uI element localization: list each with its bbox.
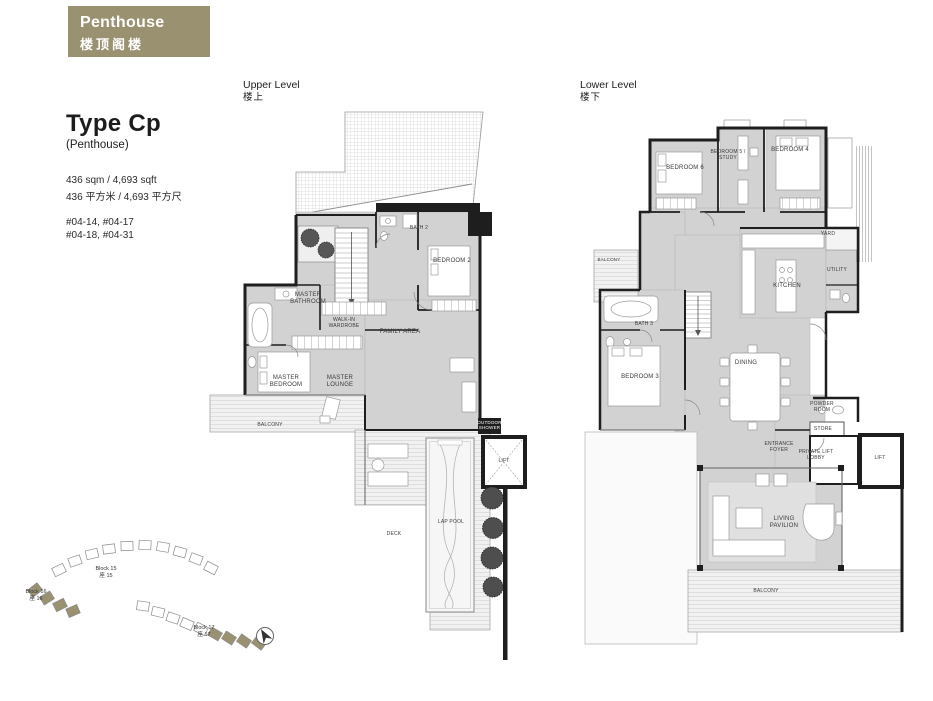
room-label-master-lounge: MASTER LOUNGE bbox=[320, 375, 360, 389]
room-label-deck: DECK bbox=[378, 532, 410, 538]
room-label-living-pavilion: LIVING PAVILION bbox=[762, 516, 806, 530]
dining-table-icon bbox=[720, 345, 790, 430]
room-label-yard: YARD bbox=[816, 232, 840, 238]
room-label-entrance-foyer: ENTRANCE FOYER bbox=[762, 442, 796, 454]
room-label-lower-lift: LIFT bbox=[862, 456, 898, 462]
lower-terrace-area bbox=[585, 432, 697, 644]
lower-level-label-en: Lower Level bbox=[580, 79, 637, 92]
room-label-upper-lift: LIFT bbox=[488, 459, 520, 465]
keyplan-block-16-label: Block 16 座 16 bbox=[16, 589, 56, 603]
room-label-family-area: FAMILY AREA bbox=[377, 329, 423, 336]
room-label-bedroom-6: BEDROOM 6 bbox=[663, 165, 707, 172]
room-label-master-bedroom: MASTER BEDROOM bbox=[264, 375, 308, 389]
room-label-dining: DINING bbox=[730, 360, 762, 367]
room-label-bath-3: BATH 3 bbox=[630, 322, 658, 328]
block-15-zh: 座 15 bbox=[86, 573, 126, 580]
stairs-icon bbox=[685, 292, 711, 338]
room-label-bedroom-5-study: BEDROOM 5 / STUDY bbox=[706, 150, 750, 162]
room-label-upper-balcony: BALCONY bbox=[248, 423, 292, 429]
room-label-side-balcony: BALCONY bbox=[594, 257, 624, 262]
floorplan-page: Penthouse 楼顶阁楼 Type Cp (Penthouse) 436 s… bbox=[0, 0, 933, 701]
room-label-walk-in-wardrobe: WALK-IN WARDROBE bbox=[325, 318, 363, 330]
badge-title: Penthouse bbox=[80, 14, 210, 32]
room-label-outdoor-shower: OUTDOOR SHOWER bbox=[477, 420, 502, 431]
keyplan-block-17-label: Block 17 座 17 bbox=[184, 625, 224, 639]
keyplan-units bbox=[28, 540, 267, 650]
stairs-icon bbox=[335, 228, 368, 308]
room-label-bath-2: BATH 2 bbox=[403, 226, 435, 232]
room-label-master-bathroom: MASTER BATHROOM bbox=[288, 292, 328, 306]
block-17-en: Block 17 bbox=[184, 625, 224, 632]
site-key-plan bbox=[15, 528, 295, 663]
bed-icon bbox=[428, 246, 470, 296]
roof-hatch bbox=[296, 112, 483, 215]
north-arrow-icon bbox=[257, 627, 274, 645]
room-label-private-lift-lobby: PRIVATE LIFT LOBBY bbox=[795, 450, 837, 462]
room-label-lap-pool: LAP POOL bbox=[433, 520, 469, 526]
lower-level-floorplan bbox=[580, 100, 910, 670]
keyplan-block-15-label: Block 15 座 15 bbox=[86, 566, 126, 580]
header-badge: Penthouse 楼顶阁楼 bbox=[68, 6, 210, 57]
room-label-bedroom-3: BEDROOM 3 bbox=[618, 374, 662, 381]
block-17-zh: 座 17 bbox=[184, 632, 224, 639]
planter-icon bbox=[298, 226, 338, 262]
block-16-zh: 座 16 bbox=[16, 596, 56, 603]
block-16-en: Block 16 bbox=[16, 589, 56, 596]
upper-top-wall bbox=[376, 203, 480, 212]
room-label-utility: UTILITY bbox=[822, 268, 852, 274]
badge-subtitle: 楼顶阁楼 bbox=[80, 34, 210, 53]
lower-balcony-area bbox=[688, 570, 902, 632]
aircon-ledge bbox=[828, 138, 852, 208]
upper-level-label-en: Upper Level bbox=[243, 79, 300, 92]
boundary-wall bbox=[503, 487, 508, 660]
room-label-store: STORE bbox=[810, 427, 836, 433]
room-label-powder-room: POWDER ROOM bbox=[807, 402, 837, 414]
room-label-bedroom-4: BEDROOM 4 bbox=[768, 147, 812, 154]
room-label-bedroom-2: BEDROOM 2 bbox=[426, 258, 478, 265]
room-label-kitchen: KITCHEN bbox=[768, 283, 806, 290]
block-15-en: Block 15 bbox=[86, 566, 126, 573]
room-label-lower-balcony: BALCONY bbox=[744, 589, 788, 595]
upper-corner-column bbox=[468, 212, 492, 236]
